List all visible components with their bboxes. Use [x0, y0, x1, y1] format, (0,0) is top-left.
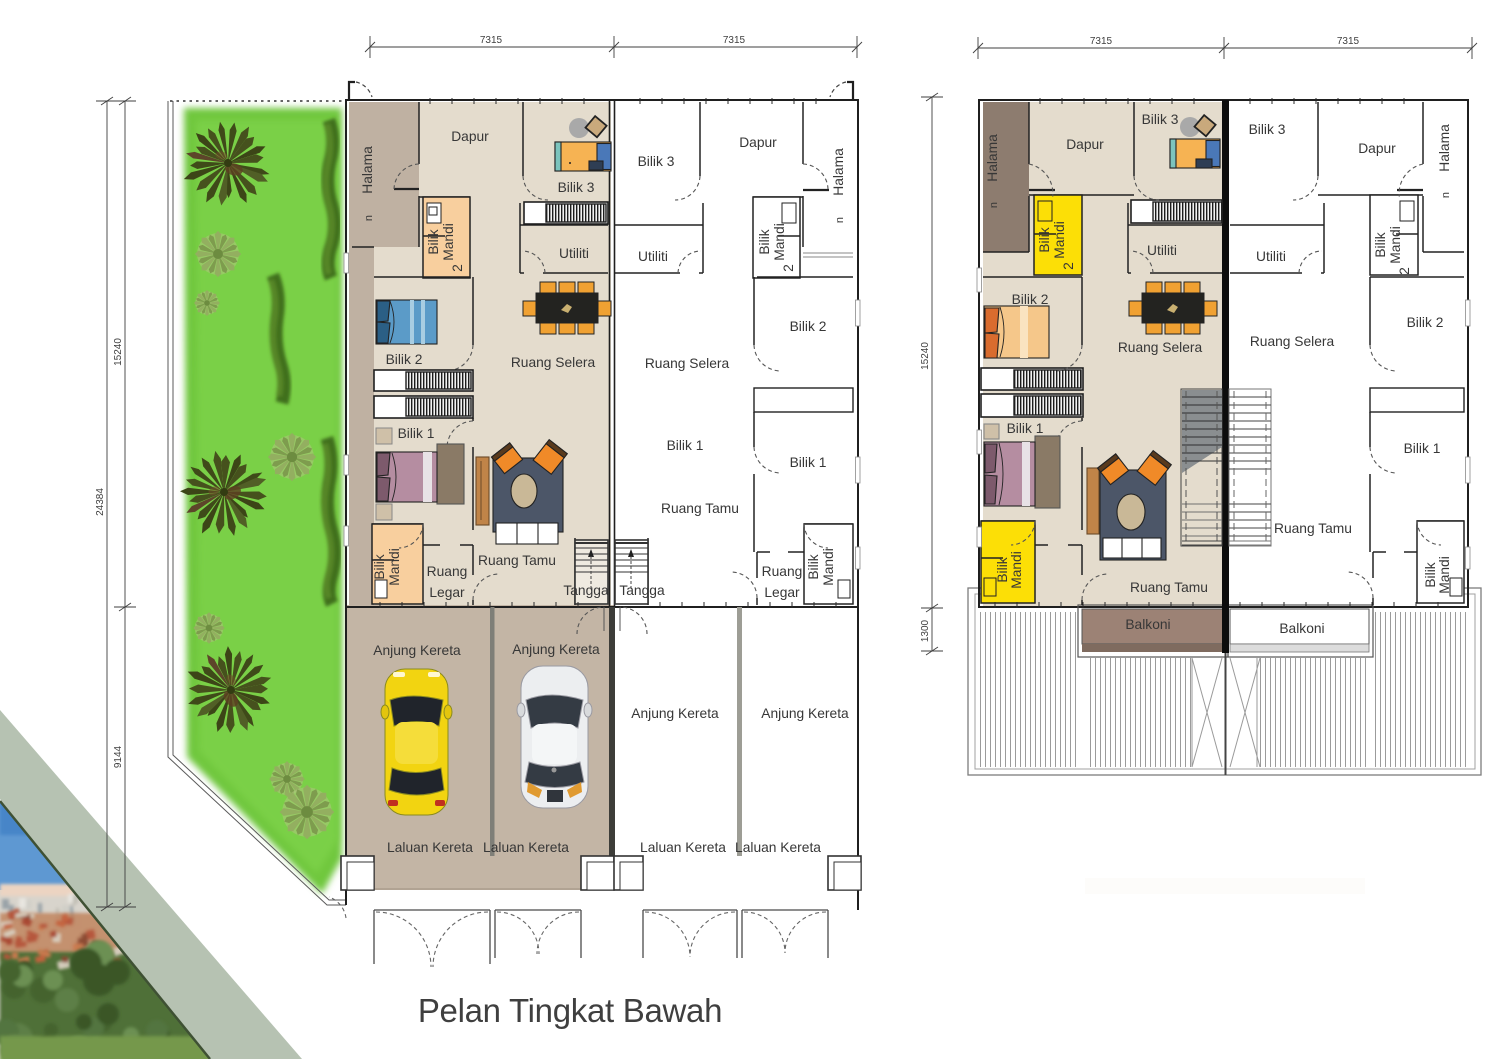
svg-text:Bilik 3: Bilik 3 — [1249, 122, 1286, 137]
svg-text:Halama: Halama — [985, 134, 1000, 182]
svg-text:Mandi: Mandi — [387, 548, 402, 586]
svg-text:7315: 7315 — [480, 35, 503, 46]
svg-text:Bilik 1: Bilik 1 — [1404, 441, 1441, 456]
svg-text:Laluan Kereta: Laluan Kereta — [483, 840, 569, 855]
svg-text:Bilik: Bilik — [372, 554, 387, 579]
svg-text:Ruang Tamu: Ruang Tamu — [1130, 580, 1208, 595]
svg-text:Laluan Kereta: Laluan Kereta — [387, 840, 473, 855]
svg-text:Utiliti: Utiliti — [638, 249, 668, 264]
svg-text:24384: 24384 — [95, 488, 106, 516]
svg-text:2: 2 — [450, 264, 465, 272]
svg-text:7315: 7315 — [723, 35, 746, 46]
svg-text:Halama: Halama — [360, 146, 375, 194]
svg-text:Bilik: Bilik — [1373, 232, 1388, 257]
svg-text:7315: 7315 — [1090, 36, 1113, 47]
svg-text:15240: 15240 — [113, 338, 124, 366]
svg-text:Anjung Kereta: Anjung Kereta — [631, 706, 719, 721]
svg-text:Ruang Selera: Ruang Selera — [645, 356, 730, 371]
svg-text:Anjung Kereta: Anjung Kereta — [512, 642, 600, 657]
svg-text:Ruang Tamu: Ruang Tamu — [661, 501, 739, 516]
svg-text:2: 2 — [781, 264, 796, 272]
svg-text:Laluan Kereta: Laluan Kereta — [640, 840, 726, 855]
svg-text:Bilik 3: Bilik 3 — [558, 180, 595, 195]
svg-text:Bilik: Bilik — [757, 229, 772, 254]
svg-text:Mandi: Mandi — [772, 223, 787, 261]
svg-text:Bilik: Bilik — [995, 557, 1010, 582]
svg-text:7315: 7315 — [1337, 36, 1360, 47]
svg-text:Bilik 3: Bilik 3 — [1142, 112, 1179, 127]
svg-text:Ruang: Ruang — [427, 564, 468, 579]
svg-text:2: 2 — [1061, 262, 1076, 270]
svg-text:Bilik 1: Bilik 1 — [667, 438, 704, 453]
svg-text:Bilik 2: Bilik 2 — [1012, 292, 1049, 307]
svg-text:n: n — [1440, 192, 1452, 198]
svg-text:Mandi: Mandi — [441, 223, 456, 261]
svg-text:Ruang Tamu: Ruang Tamu — [478, 553, 556, 568]
svg-text:Legar: Legar — [764, 585, 800, 600]
svg-text:Ruang: Ruang — [762, 564, 803, 579]
svg-text:Pelan Tingkat Bawah: Pelan Tingkat Bawah — [418, 992, 722, 1029]
svg-text:Bilik: Bilik — [806, 554, 821, 579]
svg-text:Bilik 1: Bilik 1 — [1007, 421, 1044, 436]
svg-text:Balkoni: Balkoni — [1279, 621, 1324, 636]
svg-text:n: n — [834, 217, 846, 223]
svg-text:Halama: Halama — [1437, 124, 1452, 172]
svg-text:n: n — [988, 202, 1000, 208]
svg-text:Bilik 2: Bilik 2 — [386, 352, 423, 367]
svg-text:Dapur: Dapur — [1358, 141, 1396, 156]
svg-text:9144: 9144 — [113, 745, 124, 768]
svg-text:Halama: Halama — [831, 148, 846, 196]
svg-text:Anjung Kereta: Anjung Kereta — [373, 643, 461, 658]
svg-text:n: n — [363, 215, 375, 221]
svg-text:Dapur: Dapur — [451, 129, 489, 144]
svg-text:Bilik 1: Bilik 1 — [398, 426, 435, 441]
svg-text:Bilik 2: Bilik 2 — [790, 319, 827, 334]
svg-text:Utiliti: Utiliti — [1147, 243, 1177, 258]
svg-text:Ruang Selera: Ruang Selera — [1250, 334, 1335, 349]
svg-text:15240: 15240 — [920, 342, 931, 370]
svg-text:Dapur: Dapur — [739, 135, 777, 150]
svg-text:Bilik 3: Bilik 3 — [638, 154, 675, 169]
svg-text:Dapur: Dapur — [1066, 137, 1104, 152]
svg-text:Mandi: Mandi — [1009, 551, 1024, 589]
svg-text:Mandi: Mandi — [1052, 221, 1067, 259]
svg-text:Ruang Selera: Ruang Selera — [511, 355, 596, 370]
svg-text:Bilik: Bilik — [1423, 562, 1438, 587]
svg-text:Mandi: Mandi — [1388, 226, 1403, 264]
svg-text:Balkoni: Balkoni — [1125, 617, 1170, 632]
svg-text:Legar: Legar — [429, 585, 465, 600]
svg-text:Laluan Kereta: Laluan Kereta — [735, 840, 821, 855]
svg-text:Mandi: Mandi — [821, 548, 836, 586]
svg-text:1300: 1300 — [920, 619, 931, 642]
svg-text:Bilik 2: Bilik 2 — [1407, 315, 1444, 330]
svg-text:Mandi: Mandi — [1437, 556, 1452, 594]
svg-text:Utiliti: Utiliti — [1256, 249, 1286, 264]
svg-text:Ruang Selera: Ruang Selera — [1118, 340, 1203, 355]
svg-text:Bilik: Bilik — [426, 229, 441, 254]
svg-text:Tangga: Tangga — [619, 583, 665, 598]
svg-text:Utiliti: Utiliti — [559, 246, 589, 261]
svg-text:Ruang Tamu: Ruang Tamu — [1274, 521, 1352, 536]
svg-text:Bilik 1: Bilik 1 — [790, 455, 827, 470]
svg-text:Anjung Kereta: Anjung Kereta — [761, 706, 849, 721]
svg-text:Tangga: Tangga — [563, 583, 609, 598]
svg-text:Bilik: Bilik — [1037, 227, 1052, 252]
svg-text:2: 2 — [1397, 267, 1412, 275]
